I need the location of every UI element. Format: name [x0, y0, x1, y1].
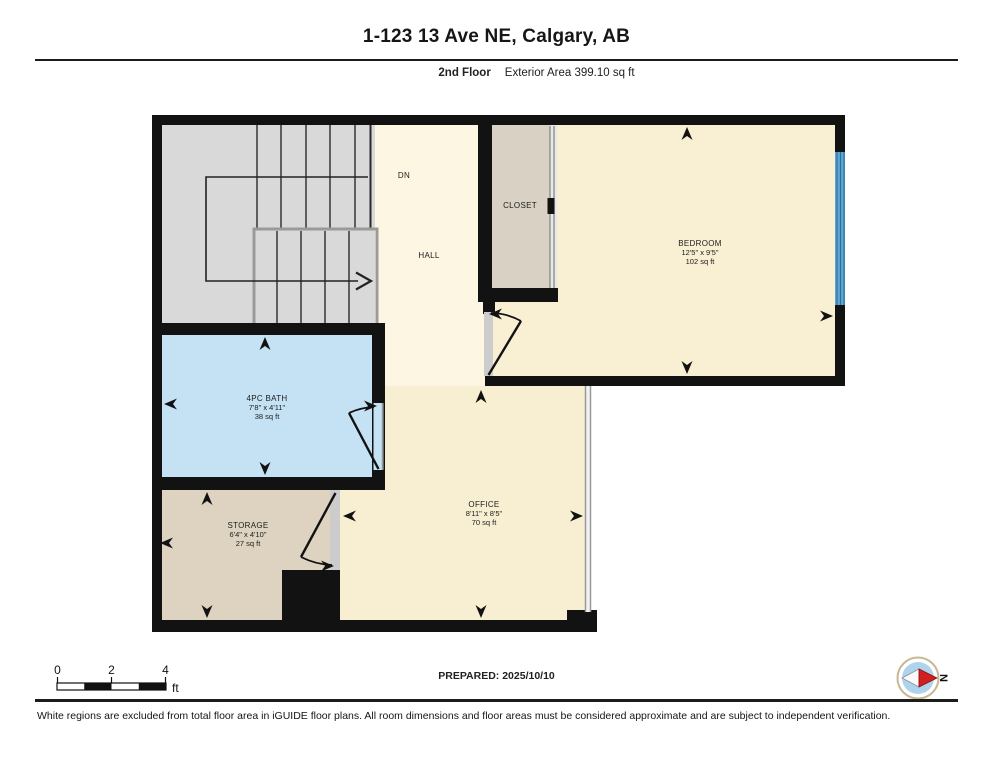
bedroom-dims: 12'5" x 9'5": [682, 248, 719, 257]
wall-left: [152, 115, 162, 632]
office-name: OFFICE: [468, 500, 499, 509]
bath-name: 4PC BATH: [247, 394, 288, 403]
floorplan-canvas: BEDROOM 12'5" x 9'5" 102 sq ft 4PC BATH …: [0, 0, 993, 768]
room-office-west: [340, 490, 385, 620]
wall-bedroom-bottom: [485, 376, 845, 386]
disclaimer-text: White regions are excluded from total fl…: [37, 710, 967, 722]
bedroom-window: [835, 152, 845, 305]
office-area: 70 sq ft: [472, 518, 498, 527]
hall-name: HALL: [418, 251, 439, 260]
storage-area: 27 sq ft: [236, 539, 262, 548]
wall-bath-storage: [152, 477, 385, 490]
prepared-date-label: PREPARED: 2025/10/10: [0, 670, 993, 682]
wall-office-corner: [567, 610, 597, 632]
scale-unit-label: ft: [172, 681, 179, 695]
room-stairs: [160, 122, 378, 330]
office-rail: [585, 386, 591, 612]
wall-stairs-bottom: [152, 323, 385, 335]
office-dims: 8'11" x 8'5": [466, 509, 503, 518]
wall-top: [152, 115, 845, 125]
room-bedroom-sw: [492, 290, 557, 378]
bedroom-door-opening: [484, 312, 493, 376]
footer-divider: [35, 699, 958, 702]
bedroom-name: BEDROOM: [678, 239, 721, 248]
closet-name: CLOSET: [503, 201, 537, 210]
bath-dims: 7'8" x 4'11": [249, 403, 286, 412]
wall-closet-bottom: [478, 288, 558, 302]
bath-area: 38 sq ft: [255, 412, 281, 421]
storage-dims: 6'4" x 4'10": [230, 530, 267, 539]
bedroom-area: 102 sq ft: [686, 257, 716, 266]
storage-name: STORAGE: [227, 521, 268, 530]
wall-chase-block: [282, 570, 340, 632]
wall-bottom: [152, 620, 597, 632]
floorplan-document: { "header": { "title": "1-123 13 Ave NE,…: [0, 0, 993, 768]
stairs-down-label: DN: [398, 171, 410, 180]
room-fills: [160, 122, 837, 620]
wall-closet-left: [478, 115, 492, 302]
